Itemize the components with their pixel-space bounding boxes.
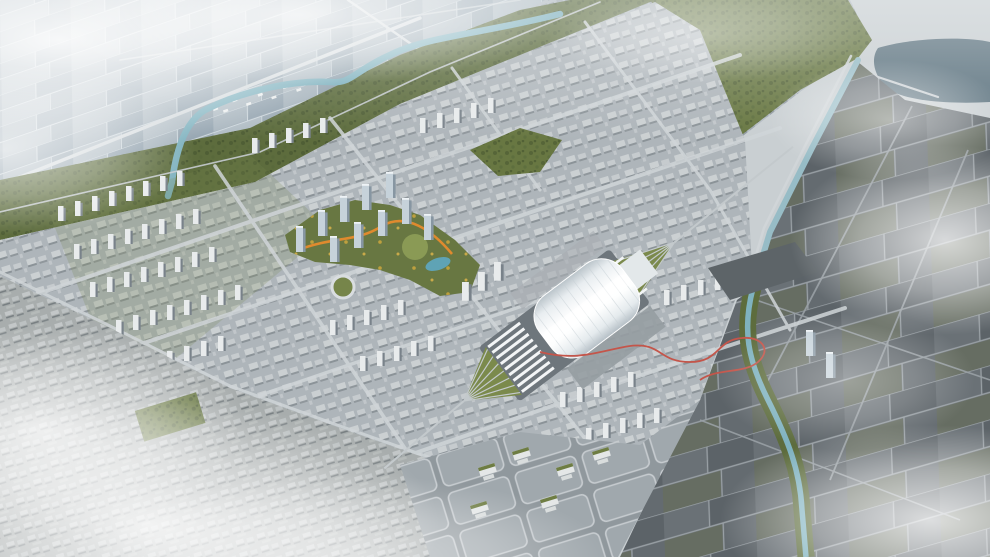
glass-tower	[354, 222, 364, 248]
glass-tower	[424, 214, 434, 240]
circular-plaza	[332, 276, 354, 298]
glass-tower	[330, 236, 340, 262]
glass-tower	[340, 196, 350, 222]
aerial-city-rendering	[0, 0, 990, 557]
glass-tower	[378, 210, 388, 236]
tower	[478, 272, 488, 291]
tower	[494, 262, 504, 281]
glass-tower	[386, 172, 396, 198]
glass-tower	[296, 226, 306, 252]
glass-tower	[402, 198, 412, 224]
tower	[462, 282, 472, 301]
masterplan-scene	[0, 0, 990, 557]
glass-tower	[362, 184, 372, 210]
glass-tower	[318, 210, 328, 236]
